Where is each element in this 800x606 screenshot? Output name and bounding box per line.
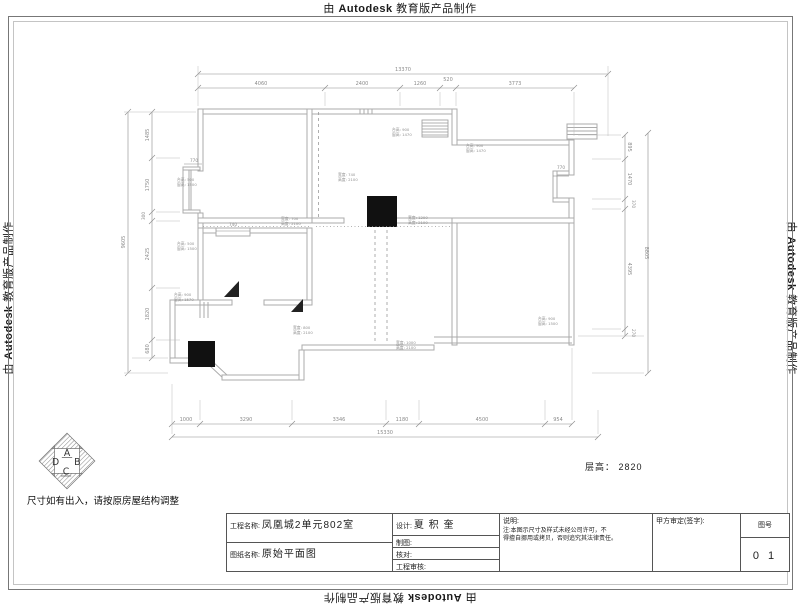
- dim-bottom-overall: 15330: [377, 430, 393, 436]
- svg-text:3290: 3290: [240, 417, 253, 423]
- dim-chain-bottom: [169, 348, 601, 440]
- svg-text:窗高: 1500: 窗高: 1500: [538, 321, 558, 326]
- svg-text:窗高: 1570: 窗高: 1570: [174, 297, 194, 302]
- svg-text:4395: 4395: [626, 263, 632, 276]
- svg-text:D: D: [52, 457, 59, 468]
- svg-text:3773: 3773: [509, 81, 522, 87]
- description-note: 注:本图示尺寸及样式未经公司许可，不 得擅自挪用或拷贝，否则追究其法律责任。: [503, 528, 649, 543]
- plan-annotations: 台高: 500窗高: 1500 台高: 500窗高: 1500 台高: 900窗…: [174, 127, 558, 350]
- reviewer-label: 工程审核:: [396, 564, 426, 571]
- checker-label: 核对:: [396, 552, 412, 559]
- svg-text:270: 270: [631, 329, 636, 337]
- svg-text:895: 895: [626, 142, 632, 152]
- svg-text:2400: 2400: [356, 81, 369, 87]
- plan-walls: [170, 109, 574, 380]
- compass-triangles: [39, 433, 95, 489]
- designer-value: 夏 积 奎: [414, 520, 455, 531]
- approval-label: 甲方审定(签字):: [656, 518, 705, 525]
- sheet-number-value: 0 1: [753, 550, 777, 562]
- dim-labels-bottom: 1000 3290 3346 1180 4500 954 15330: [180, 417, 563, 436]
- project-name-cell: 工程名称: 凤凰城2单元802室: [227, 514, 392, 542]
- sheet-name-label: 图纸名称:: [230, 552, 260, 559]
- dim-labels-top: 13370 4060 2400 1260 520 3773: [255, 67, 522, 87]
- svg-text:4500: 4500: [476, 417, 489, 423]
- svg-text:高度: 2100: 高度: 2100: [396, 345, 416, 350]
- title-block: 工程名称: 凤凰城2单元802室 图纸名称: 原始平面图 设计: 夏 积 奎 制…: [226, 513, 790, 572]
- svg-text:3346: 3346: [333, 417, 346, 423]
- svg-text:1470: 1470: [626, 173, 632, 186]
- svg-text:B: B: [74, 457, 80, 468]
- designer-label: 设计:: [396, 523, 412, 530]
- svg-text:370: 370: [631, 200, 636, 208]
- description-label: 说明:: [503, 518, 519, 525]
- project-name-label: 工程名称:: [230, 523, 260, 530]
- svg-text:740: 740: [229, 222, 237, 227]
- door-swings: [224, 281, 303, 312]
- svg-text:窗高: 1470: 窗高: 1470: [392, 132, 412, 137]
- drafter-cell: 制图:: [392, 535, 499, 547]
- compass-logo: A B C D: [36, 430, 98, 492]
- svg-text:1180: 1180: [396, 417, 409, 423]
- floor-height-value: 2820: [619, 462, 643, 472]
- svg-text:窗高: 1470: 窗高: 1470: [466, 148, 486, 153]
- svg-text:1820: 1820: [145, 308, 151, 321]
- sheet-name-value: 原始平面图: [262, 549, 317, 560]
- sheet-name-cell: 图纸名称: 原始平面图: [227, 542, 392, 571]
- svg-text:770: 770: [190, 158, 198, 163]
- svg-text:高度: 2100: 高度: 2100: [338, 177, 358, 182]
- description-cell: 说明: 注:本图示尺寸及样式未经公司许可，不 得擅自挪用或拷贝，否则追究其法律责…: [499, 514, 652, 571]
- svg-text:1750: 1750: [145, 179, 151, 192]
- designer-cell: 设计: 夏 积 奎: [392, 514, 499, 535]
- dim-labels-right: 895 1470 370 4395 270 8805: [626, 142, 649, 337]
- drafter-label: 制图:: [396, 540, 412, 547]
- dim-right-overall: 8805: [643, 247, 649, 260]
- reviewer-cell: 工程审核:: [392, 559, 499, 571]
- checker-cell: 核对:: [392, 547, 499, 559]
- floor-height-label: 层高：: [585, 462, 615, 472]
- svg-text:954: 954: [553, 417, 563, 423]
- shaft-hatch: [422, 120, 448, 137]
- dim-top-overall: 13370: [395, 67, 411, 73]
- dim-chain-top: [195, 66, 611, 136]
- dim-chain-right: [578, 130, 651, 376]
- svg-text:680: 680: [145, 344, 151, 354]
- dimension-disclaimer: 尺寸如有出入，请按原房屋结构调整: [27, 493, 179, 507]
- sheet-number-label: 图号: [758, 522, 772, 529]
- svg-text:1000: 1000: [180, 417, 193, 423]
- svg-text:2425: 2425: [145, 248, 151, 261]
- dim-labels-left: 1485 1750 300 2425 1820 680 9605: [121, 129, 151, 354]
- svg-text:高度: 2100: 高度: 2100: [408, 220, 428, 225]
- dim-left-overall: 9605: [121, 236, 127, 249]
- svg-text:1260: 1260: [414, 81, 427, 87]
- svg-text:300: 300: [141, 212, 146, 220]
- floor-height-note: 层高： 2820: [585, 460, 643, 473]
- sheet-number-header-cell: 图号: [740, 514, 789, 537]
- svg-text:高度: 2100: 高度: 2100: [293, 330, 313, 335]
- sheet-number-value-cell: 0 1: [740, 537, 789, 571]
- svg-text:520: 520: [443, 77, 453, 83]
- approval-cell: 甲方审定(签字):: [652, 514, 740, 571]
- svg-text:4060: 4060: [255, 81, 268, 87]
- svg-text:高度: 2100: 高度: 2100: [281, 221, 301, 226]
- project-name-value: 凤凰城2单元802室: [262, 520, 354, 531]
- compass-letters: A B C D: [52, 448, 80, 478]
- svg-text:770: 770: [557, 165, 565, 170]
- svg-text:1485: 1485: [145, 129, 151, 142]
- svg-text:窗高: 1500: 窗高: 1500: [177, 246, 197, 251]
- svg-text:窗高: 1500: 窗高: 1500: [177, 182, 197, 187]
